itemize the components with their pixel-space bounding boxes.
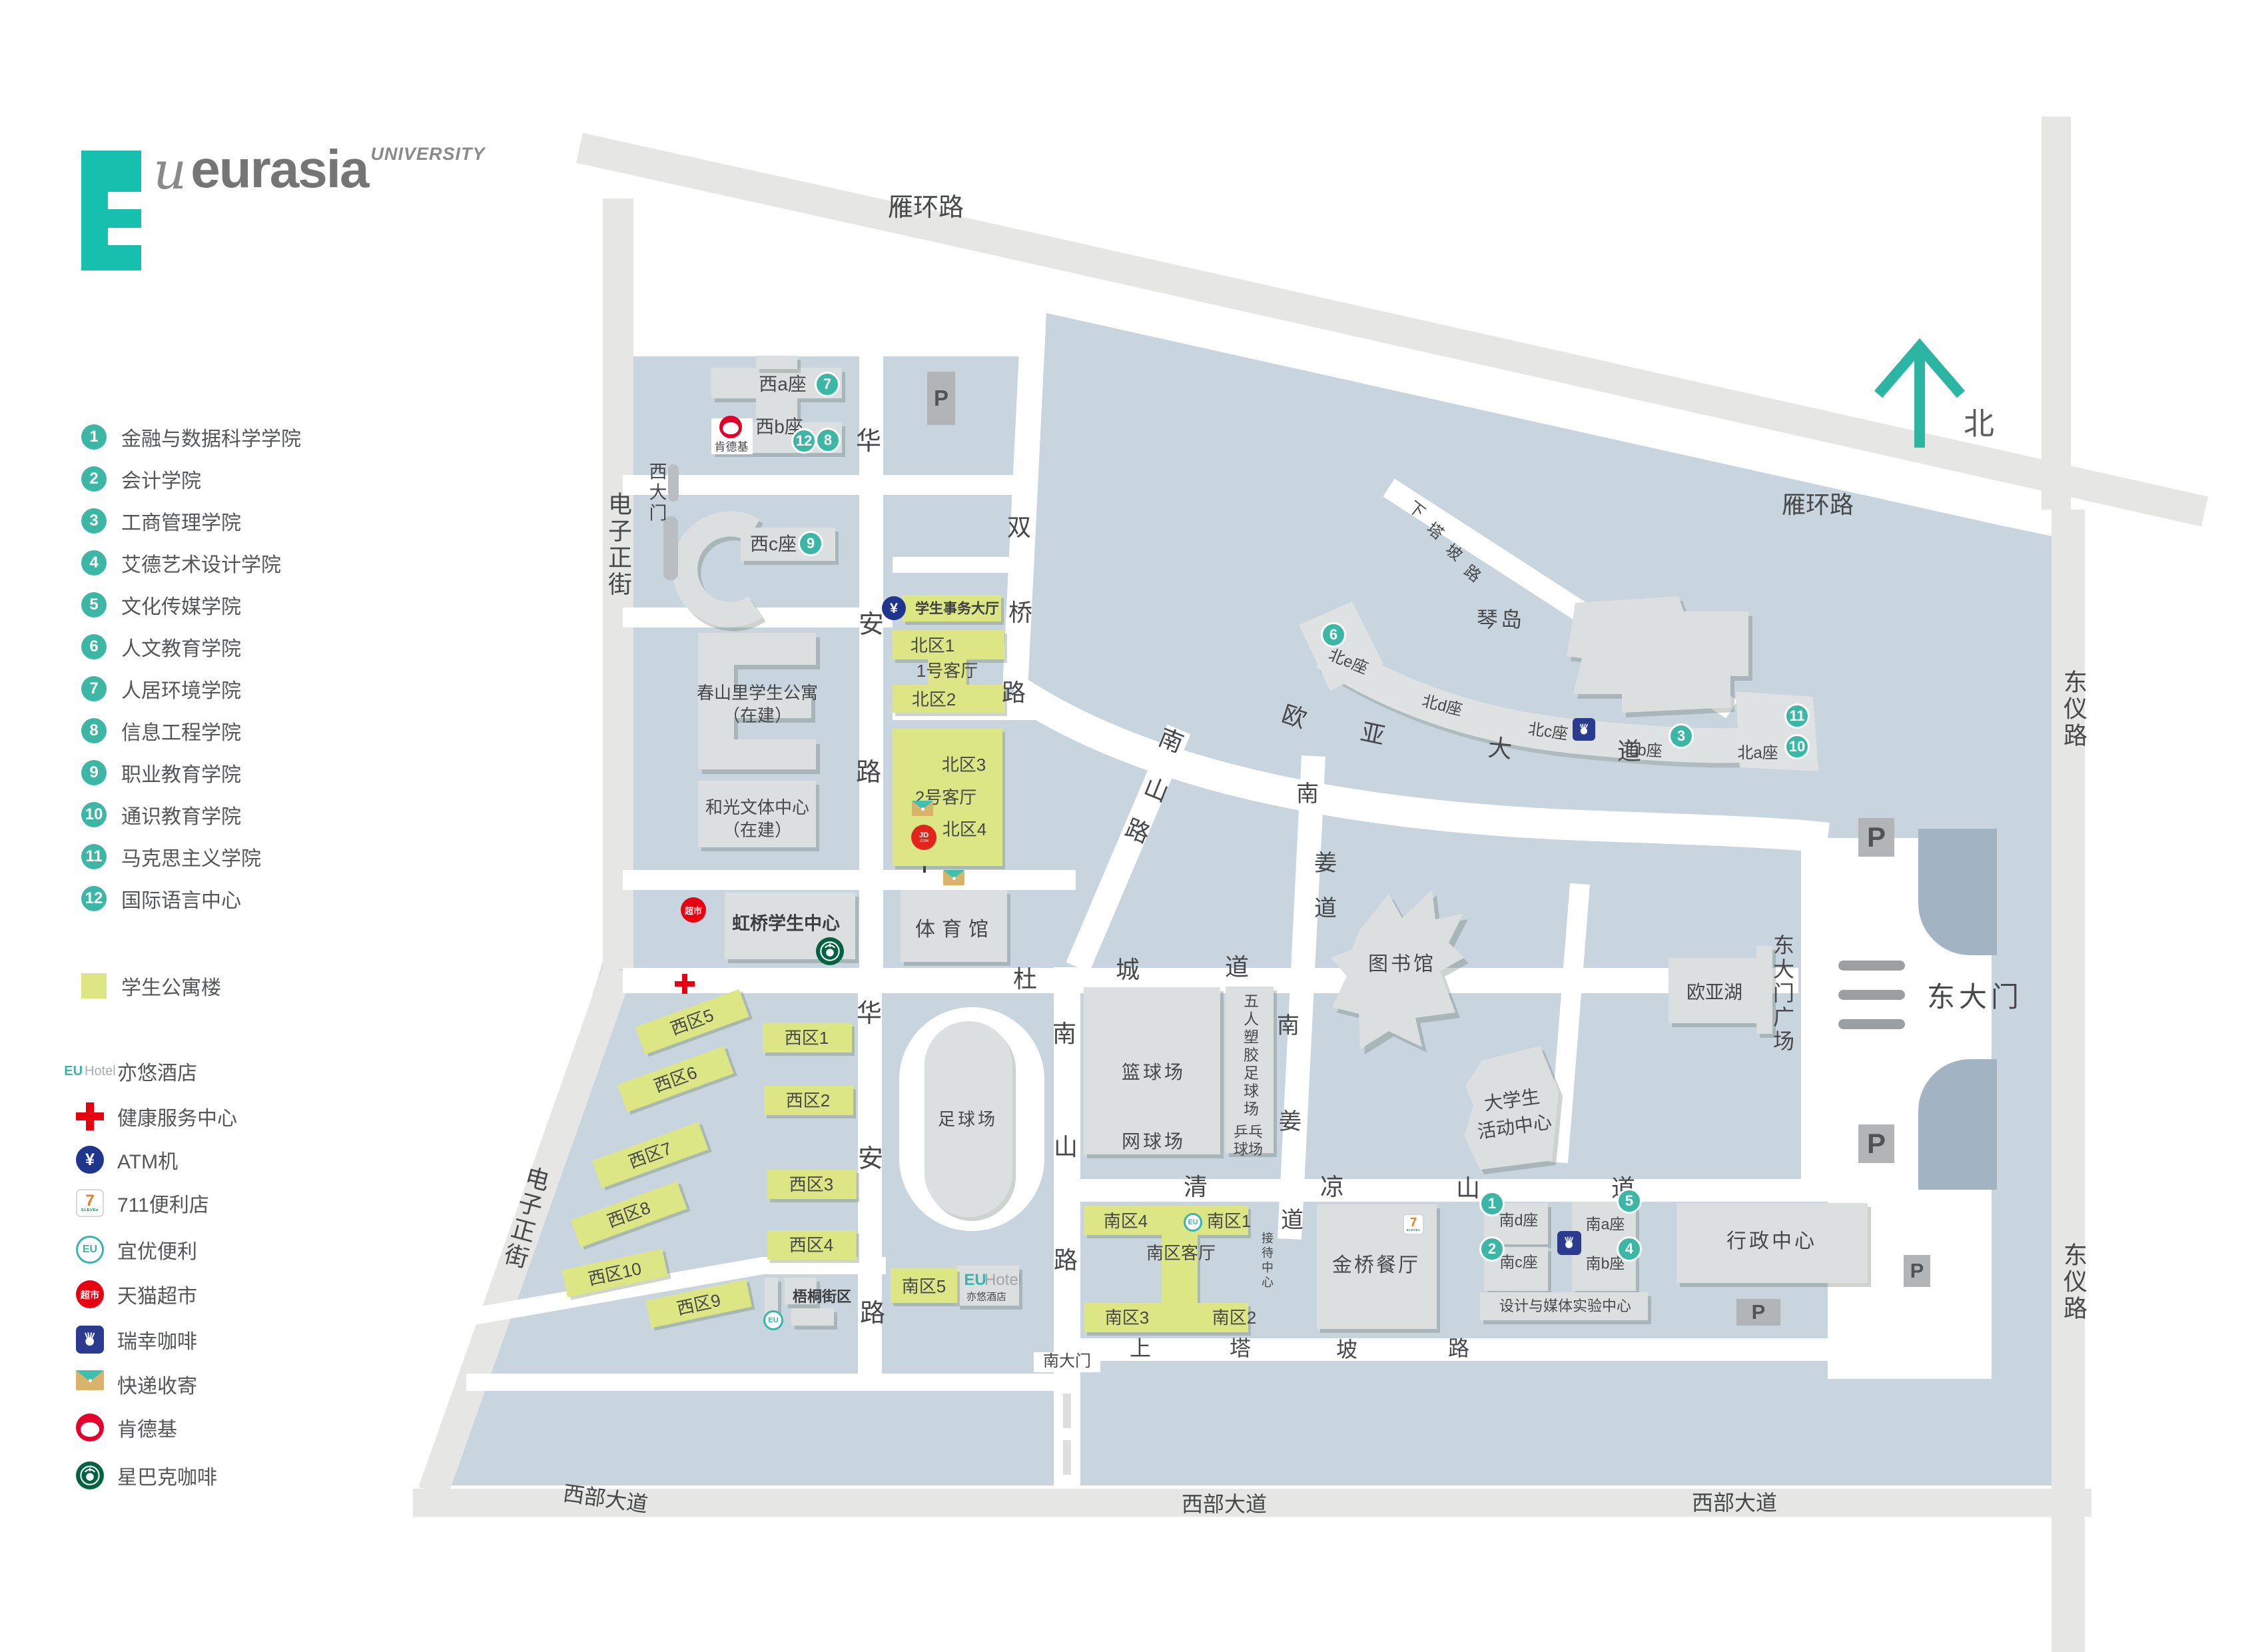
health-cross-legend-icon [75, 1101, 105, 1132]
legend-number-badge: 8 [81, 718, 107, 743]
map-label: 道 [1281, 1209, 1304, 1232]
map-label: 活动中心 [1477, 1112, 1553, 1141]
map-label: 南大门 [1043, 1354, 1091, 1370]
map-label: 华 [857, 1001, 882, 1027]
east-gate-bar [1838, 961, 1905, 971]
map-label: 西区2 [786, 1092, 830, 1109]
map-label: （在建） [723, 707, 792, 724]
map-label: 清 [1184, 1175, 1208, 1199]
legend-label: 艾德艺术设计学院 [121, 548, 281, 578]
tmall-icon-holder: 超市 [681, 897, 706, 923]
map-label: 欧 [1279, 701, 1309, 731]
map-label: 路 [1448, 1338, 1469, 1359]
map-label: 北区2 [912, 691, 956, 708]
kfc-icon: KFC [719, 416, 742, 438]
wutong-block-3 [791, 1308, 834, 1326]
map-label: 球场 [1234, 1142, 1263, 1157]
legend-number-badge: 11 [81, 844, 107, 869]
map-label: 塔 [1423, 520, 1446, 543]
kfc-legend-icon: KFC [75, 1412, 105, 1443]
map-label: 南 [1156, 725, 1187, 757]
legend-label: 快递收寄 [117, 1370, 197, 1399]
marker-2: 2 [1479, 1236, 1505, 1262]
north-label: 北 [1964, 400, 1994, 444]
map-label: 亚 [1359, 720, 1387, 749]
map-label: 学生事务大厅 [915, 602, 999, 616]
map-label: 路 [1122, 816, 1154, 847]
map-label: 坡 [1442, 542, 1465, 564]
map-label: 南 [1052, 1022, 1076, 1046]
eu-store-icon: EU [76, 1236, 104, 1264]
road-label: 东仪路 [2061, 669, 2085, 749]
campus-map: 雁环路雁环路电子正街电子正街西大门东仪路东仪路华安路华安路双桥路杜城道南山路南山… [0, 0, 2242, 1652]
road-label: 电子正街 [500, 1163, 550, 1272]
eu-icon-holder: EU [1184, 1213, 1202, 1232]
map-label: 道 [1314, 897, 1337, 920]
legend-number-badge: 9 [81, 760, 107, 785]
eu-hotel-icon: EUHotel [64, 1064, 116, 1079]
legend-item-eu-store: EU宜优便利 [75, 1234, 197, 1265]
map-label: 琴岛 [1477, 609, 1525, 630]
map-label: 肯德基 [715, 442, 749, 453]
map-label: 北区4 [942, 821, 986, 838]
legend-label: 会计学院 [121, 464, 201, 494]
map-label: 杜 [1013, 967, 1037, 991]
legend-number-badge: 5 [81, 592, 107, 618]
legend-label: 通识教育学院 [121, 800, 241, 829]
map-label: 南区3 [1105, 1309, 1149, 1326]
parking-icon: P [1736, 1299, 1780, 1326]
legend-item-college-8: 8信息工程学院 [81, 716, 241, 745]
map-label: 西c座 [750, 535, 797, 554]
marker-9: 9 [798, 531, 823, 556]
legend-label: 学生公寓楼 [121, 971, 221, 1001]
legend-item-starbucks: 星巴克咖啡 [75, 1460, 217, 1491]
map-label: 西区1 [785, 1029, 829, 1046]
map-label: 西区4 [789, 1236, 833, 1254]
map-label: 北a座 [1737, 745, 1778, 761]
legend-item-college-4: 4艾德艺术设计学院 [81, 548, 281, 578]
eu-store-icon: EU [1184, 1213, 1202, 1232]
seven-eleven-legend-icon: 7ELEVEn [75, 1188, 105, 1218]
eu-store-icon: EU [763, 1310, 783, 1330]
luckin-coffee-icon [1573, 718, 1595, 741]
kfc-icon-holder: KFC [719, 416, 742, 438]
map-label: 北区3 [942, 756, 986, 773]
marker-11: 11 [1784, 703, 1810, 729]
road-label: 东仪路 [2061, 1242, 2085, 1322]
legend-number-badge: 10 [81, 802, 107, 827]
map-label: 凉 [1320, 1175, 1344, 1199]
legend-label: 文化传媒学院 [121, 590, 241, 619]
legend-item-atm: ¥ATM机 [75, 1144, 178, 1175]
health-cross-icon [76, 1102, 104, 1130]
atm-legend-icon: ¥ [75, 1144, 105, 1175]
legend-label: 信息工程学院 [121, 716, 241, 745]
map-label: 城 [1116, 958, 1140, 982]
marker-12: 12 [791, 428, 817, 454]
marker-3: 3 [1669, 723, 1694, 749]
legend-label: 天猫超市 [117, 1280, 197, 1309]
legend-item-college-2: 2会计学院 [81, 464, 201, 494]
legend-label: 瑞幸咖啡 [117, 1325, 197, 1354]
parking-icon: P [1858, 818, 1894, 857]
legend-item-college-6: 6人文教育学院 [81, 632, 241, 661]
map-label: 南区4 [1104, 1212, 1148, 1230]
starbucks-icon [816, 937, 844, 965]
legend-item-college-11: 11马克思主义学院 [81, 842, 261, 871]
map-label: 足球场 [938, 1110, 998, 1128]
legend-item-college-5: 5文化传媒学院 [81, 590, 241, 619]
legend-label: 亦悠酒店 [117, 1056, 197, 1086]
map-label: 篮球场 [1122, 1063, 1186, 1082]
dorm-color-swatch [81, 973, 107, 999]
map-label: 西a座 [759, 375, 807, 394]
tmall-market-legend-icon: 超市 [75, 1279, 105, 1310]
legend-item-college-1: 1金融与数据科学学院 [81, 422, 301, 452]
map-label: 大 [1487, 735, 1513, 761]
tmall-market-icon: 超市 [76, 1280, 104, 1308]
express-mail-icon [76, 1370, 104, 1398]
map-label: 北区1 [911, 637, 954, 654]
parking-icon: P [1858, 1124, 1894, 1163]
map-label: 路 [1002, 681, 1026, 705]
legend-item-express: 快递收寄 [75, 1369, 197, 1400]
map-label: 南c座 [1499, 1255, 1538, 1270]
map-label: 路 [856, 760, 881, 785]
map-label: 体育馆 [915, 920, 995, 940]
map-label: （在建） [723, 821, 792, 839]
legend-item-college-9: 9职业教育学院 [81, 758, 241, 787]
map-label: 南b座 [1586, 1256, 1625, 1272]
legend-item-college-7: 7人居环境学院 [81, 674, 241, 703]
express-mail-icon [912, 801, 933, 822]
map-label: 南区客厅 [1146, 1244, 1216, 1262]
legend-item-seven-eleven: 7ELEVEn711便利店 [75, 1188, 209, 1218]
eu-hotel-legend-icon: EUHotel [75, 1056, 105, 1086]
jd-icon-holder: JD.COM [911, 825, 936, 850]
seven-eleven-icon: 7ELEVEn [76, 1189, 104, 1217]
map-label: 山 [1141, 775, 1172, 806]
north-compass: 北 [1845, 313, 2018, 473]
kfc-icon: KFC [76, 1414, 104, 1442]
map-label: 华 [856, 429, 881, 454]
map-label: 山 [1054, 1135, 1078, 1159]
map-label: 春山里学生公寓 [697, 684, 818, 701]
cross-icon-holder [675, 974, 695, 994]
legend-item-eu-hotel: EUHotel亦悠酒店 [75, 1056, 197, 1086]
legend-label: ATM机 [117, 1145, 178, 1174]
marker-5: 5 [1617, 1188, 1642, 1214]
map-label: 北d座 [1420, 693, 1463, 719]
west-gate-pier [668, 464, 679, 502]
road-label: 五人塑胶足球场 [1242, 993, 1258, 1119]
marker-10: 10 [1784, 734, 1810, 759]
marker-6: 6 [1321, 622, 1346, 647]
parking-icon: P [927, 372, 955, 425]
starbucks-icon-holder [816, 937, 844, 965]
map-label: 安 [858, 1146, 883, 1172]
map-label: 南区1 [1207, 1212, 1251, 1230]
map-label: 雁环路 [1782, 493, 1854, 517]
legend-item-college-3: 3工商管理学院 [81, 506, 241, 536]
map-label: 1号客厅 [917, 662, 978, 679]
map-label: 南 [1296, 783, 1319, 805]
luckin-icon-holder [1557, 1231, 1581, 1255]
map-label: 北e座 [1326, 647, 1370, 677]
eu-icon-holder: EU [763, 1310, 783, 1330]
map-label: 路 [860, 1301, 885, 1326]
legend-label: 人居环境学院 [121, 674, 241, 703]
legend-label: 职业教育学院 [121, 758, 241, 787]
map-label: 图书馆 [1368, 955, 1436, 975]
road-label: 接待中心 [1261, 1232, 1273, 1290]
logo-wordmark: eurasia [190, 139, 368, 200]
legend-label: 肯德基 [117, 1413, 177, 1442]
map-label: 双 [1007, 516, 1031, 540]
map-label: 南区5 [902, 1278, 946, 1295]
map-label: 西部大道 [561, 1482, 649, 1515]
legend-item-tmall-market: 超市天猫超市 [75, 1279, 197, 1310]
starbucks-icon [76, 1461, 104, 1489]
map-label: 梧桐街区 [793, 1290, 851, 1304]
starbucks-legend-icon [75, 1460, 105, 1491]
map-label: 西部大道 [1692, 1492, 1777, 1513]
express-icon-holder [943, 870, 964, 891]
atm-icon: ¥ [76, 1146, 104, 1174]
luckin-coffee-icon [76, 1326, 104, 1354]
map-label: 塔 [1230, 1338, 1251, 1359]
map-label: 西部大道 [1182, 1493, 1267, 1515]
logo-script-u: u [153, 141, 187, 201]
legend-item-kfc: KFC肯德基 [75, 1412, 177, 1443]
road-label: 西大门 [647, 462, 665, 524]
luckin-coffee-icon [1557, 1231, 1581, 1255]
east-gate-bar [1838, 1019, 1905, 1029]
legend-item-luckin: 瑞幸咖啡 [75, 1324, 197, 1355]
map-label: 乒乓 [1234, 1125, 1263, 1140]
map-label: 行政中心 [1726, 1232, 1817, 1252]
map-label: 亦悠酒店 [966, 1292, 1006, 1302]
map-label: 坡 [1336, 1339, 1357, 1360]
legend-number-badge: 6 [81, 634, 107, 659]
map-label: 桥 [1008, 601, 1032, 625]
atm-icon-holder: ¥ [882, 596, 906, 620]
map-label: 雁环路 [888, 195, 964, 220]
west-gate-pier [663, 516, 678, 580]
seven-icon-holder: 7ELEVEn [1403, 1214, 1424, 1235]
luckin-icon-holder [1573, 718, 1595, 741]
eu-store-legend-icon: EU [75, 1234, 105, 1265]
map-label: 金桥餐厅 [1332, 1256, 1420, 1276]
legend-label: 人文教育学院 [121, 632, 241, 661]
atm-icon: ¥ [882, 596, 906, 620]
map-label: 道 [1225, 955, 1249, 979]
logo-e-mark-icon [81, 151, 141, 270]
legend-number-badge: 1 [81, 424, 107, 450]
map-label: 南d座 [1499, 1213, 1539, 1228]
marker-8: 8 [815, 428, 841, 453]
marker-4: 4 [1617, 1236, 1642, 1262]
legend-number-badge: 7 [81, 676, 107, 701]
map-label: 路 [1054, 1248, 1078, 1272]
express-mail-icon [943, 870, 964, 891]
map-label: 欧亚湖 [1686, 983, 1742, 1002]
express-icon-holder [912, 801, 933, 822]
marker-1: 1 [1479, 1191, 1505, 1216]
legend-item-college-12: 12国际语言中心 [81, 884, 241, 913]
legend-label: 星巴克咖啡 [117, 1461, 217, 1490]
jd-icon: JD.COM [911, 825, 936, 850]
map-label: 安 [859, 612, 884, 637]
map-label: 虹桥学生中心 [732, 915, 840, 933]
map-label: 姜 [1314, 852, 1337, 875]
map-label: 南区2 [1212, 1309, 1256, 1326]
north-arrow-icon [1845, 313, 2018, 473]
map-label: 姜 [1279, 1110, 1302, 1133]
legend-label: 马克思主义学院 [121, 842, 261, 871]
health-cross-icon [675, 974, 695, 994]
legend-number-badge: 12 [81, 886, 107, 911]
seven-eleven-icon: 7ELEVEn [1403, 1214, 1424, 1235]
legend-label: 工商管理学院 [121, 506, 241, 536]
logo-superscript: UNIVERSITY [370, 144, 485, 165]
map-label: 南a座 [1586, 1217, 1625, 1232]
map-label: 和光文体中心 [705, 799, 809, 816]
map-label: 东大门 [1927, 983, 2023, 1011]
road-label: 电子正街 [606, 492, 630, 598]
map-label: 山 [1456, 1176, 1480, 1200]
road-label: 东大门广场 [1772, 934, 1793, 1054]
map-label: 西区3 [789, 1176, 833, 1193]
parking-icon: P [1904, 1255, 1930, 1287]
express-legend-icon [75, 1369, 105, 1400]
map-label: 大学生 [1483, 1087, 1541, 1113]
legend-label: 宜优便利 [117, 1235, 197, 1264]
bldg-west-a-tab [756, 356, 797, 369]
legend-number-badge: 2 [81, 466, 107, 492]
tmall-market-icon: 超市 [681, 897, 706, 923]
east-gate-bar [1838, 990, 1905, 1000]
legend-number-badge: 4 [81, 550, 107, 576]
map-label: 设计与媒体实验中心 [1499, 1299, 1631, 1314]
luckin-legend-icon [75, 1324, 105, 1355]
legend-label: 国际语言中心 [121, 884, 241, 913]
map-label: 北b座 [1621, 741, 1663, 759]
marker-7: 7 [815, 372, 840, 397]
map-label: 网球场 [1122, 1132, 1186, 1151]
legend-number-badge: 3 [81, 508, 107, 534]
map-label: 上 [1130, 1338, 1151, 1359]
legend-label: 711便利店 [117, 1188, 209, 1218]
university-logo: u eurasia UNIVERSITY [81, 151, 485, 270]
legend-item-apartment: 学生公寓楼 [81, 971, 221, 1001]
map-label: 路 [1461, 563, 1483, 586]
map-label: 下 [1405, 499, 1427, 522]
map-label: Hotel [984, 1272, 1022, 1288]
legend-label: 健康服务中心 [117, 1102, 237, 1131]
map-label: 南 [1277, 1015, 1300, 1037]
legend-item-college-10: 10通识教育学院 [81, 800, 241, 829]
legend-item-health-cross: 健康服务中心 [75, 1101, 237, 1132]
map-label: 北c座 [1527, 721, 1569, 743]
legend-label: 金融与数据科学学院 [121, 422, 301, 452]
map-label: EU [964, 1272, 986, 1288]
